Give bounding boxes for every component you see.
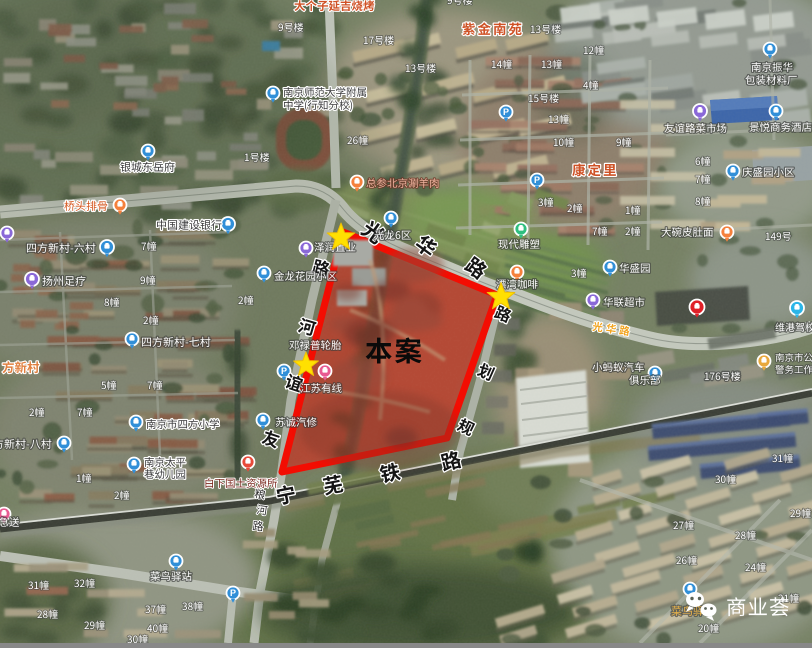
svg-text:P: P [230,588,236,598]
svg-text:P: P [281,366,287,376]
svg-text:P: P [503,107,509,117]
svg-text:P: P [534,175,540,185]
